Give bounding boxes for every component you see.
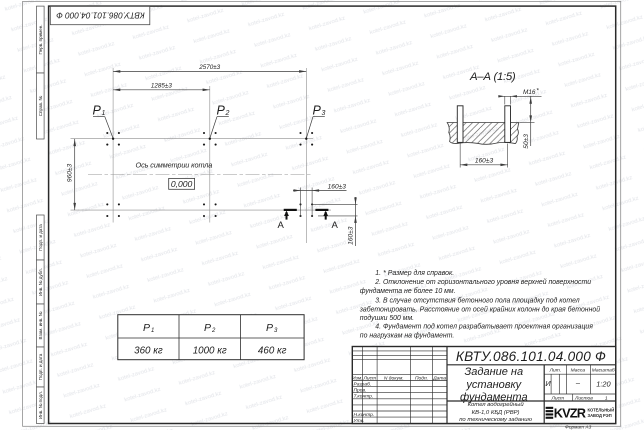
svg-text:Лист: Лист xyxy=(551,395,565,401)
svg-text:2: 2 xyxy=(225,110,230,117)
svg-text:1: 1 xyxy=(605,395,608,401)
svg-text:А: А xyxy=(278,220,285,231)
svg-text:КВТУ.086.101.04.000 Ф: КВТУ.086.101.04.000 Ф xyxy=(456,349,606,364)
svg-text:Задание на: Задание на xyxy=(465,366,524,378)
svg-text:Изм.: Изм. xyxy=(352,375,362,381)
svg-text:КВТУ.086.101.04.000 Ф: КВТУ.086.101.04.000 Ф xyxy=(56,10,145,20)
svg-text:установку: установку xyxy=(465,379,522,391)
svg-text:Перв. примен.: Перв. примен. xyxy=(38,25,43,55)
svg-text:Лист: Лист xyxy=(363,375,377,381)
svg-text:Справ. №: Справ. № xyxy=(38,96,43,117)
svg-text:1000 кг: 1000 кг xyxy=(193,345,227,356)
svg-text:2: 2 xyxy=(211,328,216,334)
svg-text:фундамента не более 10 мм.: фундамента не более 10 мм. xyxy=(360,287,456,295)
svg-text:P: P xyxy=(266,322,273,334)
svg-text:1: 1 xyxy=(102,110,106,117)
svg-text:М16: М16 xyxy=(523,89,536,96)
svg-text:Листов: Листов xyxy=(574,395,593,401)
svg-text:Разраб.: Разраб. xyxy=(354,381,372,387)
svg-text:Ось симметрии котла: Ось симметрии котла xyxy=(136,161,213,170)
svg-text:1:20: 1:20 xyxy=(596,379,611,388)
svg-text:1. * Размер для справок.: 1. * Размер для справок. xyxy=(375,268,454,277)
svg-text:160±3: 160±3 xyxy=(475,158,494,165)
svg-text:Котел водогрейный: Котел водогрейный xyxy=(468,401,525,408)
svg-text:Дата: Дата xyxy=(432,375,446,381)
svg-text:960±3: 960±3 xyxy=(67,164,74,183)
svg-text:0,000: 0,000 xyxy=(171,179,193,189)
svg-text:–: – xyxy=(575,379,581,388)
svg-text:Масса: Масса xyxy=(571,368,586,374)
svg-text:1: 1 xyxy=(151,328,154,334)
svg-text:Инв. № подл.: Инв. № подл. xyxy=(38,391,43,419)
svg-text:Утв.: Утв. xyxy=(354,418,365,424)
svg-text:4. Фундамент под котел разраба: 4. Фундамент под котел разрабатывает про… xyxy=(375,323,593,331)
svg-text:160±3: 160±3 xyxy=(328,184,347,191)
svg-text:1285±3: 1285±3 xyxy=(151,82,172,89)
svg-text:160±3: 160±3 xyxy=(348,226,355,245)
svg-text:2. Отклонение от горизонтально: 2. Отклонение от горизонтального уровня … xyxy=(374,278,591,286)
svg-text:Н.контр.: Н.контр. xyxy=(354,412,375,418)
svg-text:КВ-1,0 КБД (РВР): КВ-1,0 КБД (РВР) xyxy=(472,410,520,416)
svg-text:N докум.: N докум. xyxy=(384,375,404,381)
svg-text:Инв. № дубл.: Инв. № дубл. xyxy=(38,268,43,296)
svg-text:Масштаб: Масштаб xyxy=(592,368,615,374)
svg-text:КОТЕЛЬНЫЙ: КОТЕЛЬНЫЙ xyxy=(588,408,615,413)
svg-text:Взам. инв. №: Взам. инв. № xyxy=(38,311,43,339)
svg-text:забетонировать. Расстояние от: забетонировать. Расстояние от осей крайн… xyxy=(359,305,600,313)
svg-text:3. В случае отсутствия бетонно: 3. В случае отсутствия бетонного пола пл… xyxy=(375,296,579,304)
svg-text:подушки 500 мм.: подушки 500 мм. xyxy=(360,314,414,322)
svg-text:P: P xyxy=(204,322,211,334)
svg-text:А: А xyxy=(332,220,339,231)
svg-text:Подп.: Подп. xyxy=(415,375,428,381)
svg-text:P: P xyxy=(143,322,150,334)
svg-text:Подп. и дата: Подп. и дата xyxy=(38,224,43,251)
svg-text:Подп. и дата: Подп. и дата xyxy=(38,353,43,380)
svg-text:3: 3 xyxy=(322,110,326,117)
svg-text:по техническому заданию: по техническому заданию xyxy=(459,417,532,423)
svg-text:Т.контр.: Т.контр. xyxy=(354,394,374,400)
svg-text:50±3: 50±3 xyxy=(523,134,530,149)
svg-text:ЗАВОД РЭП: ЗАВОД РЭП xyxy=(588,413,612,418)
svg-text:И: И xyxy=(545,379,551,388)
svg-text:P: P xyxy=(217,104,226,118)
svg-text:P: P xyxy=(313,104,322,118)
svg-text:Пров.: Пров. xyxy=(354,388,367,394)
svg-text:360 кг: 360 кг xyxy=(134,345,163,356)
svg-text:P: P xyxy=(93,104,102,118)
svg-text:Лит.: Лит. xyxy=(549,368,561,374)
svg-text:Формат А3: Формат А3 xyxy=(565,424,592,430)
svg-text:460 кг: 460 кг xyxy=(258,345,287,356)
svg-text:А–А (1:5): А–А (1:5) xyxy=(469,71,516,83)
svg-text:по нагрузкам на фундамент.: по нагрузкам на фундамент. xyxy=(360,332,455,340)
svg-text:KVZR: KVZR xyxy=(554,406,586,421)
svg-text:2570±3: 2570±3 xyxy=(198,64,220,71)
